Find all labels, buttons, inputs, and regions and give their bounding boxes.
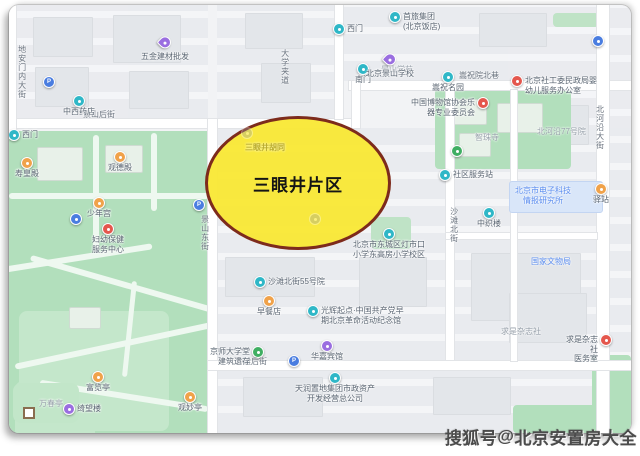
poi-dot-icon <box>447 76 450 79</box>
poi-label: 北京市东城区灯市口 小学东高房小学校区 <box>353 240 425 259</box>
parking-icon: P <box>47 79 51 85</box>
poi-dot-icon <box>597 40 600 43</box>
poi-label: 华嘉宾馆 <box>311 352 343 362</box>
poi-label: 中织楼 <box>477 219 501 229</box>
poi-marker-orange[interactable] <box>595 183 607 195</box>
parking-icon: P <box>197 202 201 208</box>
poi-marker-teal[interactable] <box>9 129 20 141</box>
poi-layer: 五金建材批发P中西药店西门寿皇殿观德殿少年宫妇幼保健 服务中心富览亭观妙亭绮望楼… <box>9 5 631 433</box>
pavilion-icon <box>23 407 35 419</box>
poi-label: 光辉起点·中国共产党早 期北京革命活动纪念馆 <box>321 306 404 325</box>
poi-dot-icon <box>444 174 447 177</box>
poi-dot-icon <box>119 156 122 159</box>
poi-dot-icon <box>605 339 608 342</box>
poi-dot-icon <box>13 134 16 137</box>
poi-label: 寿皇殿 <box>15 169 39 179</box>
poi-marker-teal[interactable] <box>254 276 266 288</box>
poi-marker-gray[interactable] <box>309 213 321 225</box>
poi-dot-icon <box>257 351 260 354</box>
watermark-platform: 搜狐号 <box>445 429 498 448</box>
poi-dot-icon <box>312 310 315 313</box>
poi-marker-teal[interactable] <box>389 11 401 23</box>
map-canvas[interactable]: 地安门内大街景山后街景山东街大学夹道嵩祝院北巷沙滩北街沙滩后街北河沿大街景山学苑… <box>9 5 631 433</box>
street-label: 北河沿大街 <box>595 105 605 150</box>
poi-dot-icon <box>334 377 337 380</box>
poi-dot-icon <box>268 300 271 303</box>
poi-dot-icon <box>362 68 365 71</box>
poi-marker-blue[interactable] <box>70 213 82 225</box>
highlight-ellipse: 三眼井片区 <box>205 116 391 250</box>
poi-marker-teal[interactable] <box>73 95 85 107</box>
poi-marker-orange[interactable] <box>92 371 104 383</box>
poi-dot-icon <box>98 202 101 205</box>
poi-dot-icon <box>338 28 341 31</box>
poi-marker-orange[interactable] <box>114 151 126 163</box>
poi-label: 妇幼保健 服务中心 <box>92 235 124 254</box>
area-label: 智珠寺 <box>475 133 499 143</box>
poi-marker-teal[interactable] <box>483 207 495 219</box>
poi-dot-icon <box>97 376 100 379</box>
poi-marker-orange[interactable] <box>184 391 196 403</box>
poi-marker-teal[interactable] <box>439 169 451 181</box>
poi-marker-blueP-parking[interactable]: P <box>43 76 55 88</box>
poi-dot-icon <box>68 408 71 411</box>
poi-label: 求是杂志社 医务室 <box>565 335 598 364</box>
street-label: 景山东街 <box>200 215 210 251</box>
poi-marker-gray[interactable] <box>241 127 253 139</box>
poi-label: 北京社工委民政局婴 幼儿服务办公室 <box>525 76 597 95</box>
poi-label: 绮望楼 <box>77 404 101 414</box>
poi-dot-icon <box>389 58 392 61</box>
poi-dot-icon <box>246 132 249 135</box>
page: { "highlight": { "label": "三眼井片区" }, "wa… <box>0 0 640 456</box>
poi-marker-purple[interactable] <box>63 403 75 415</box>
at-icon: @ <box>497 427 514 446</box>
poi-marker-orange[interactable] <box>263 295 275 307</box>
poi-label: 西门 <box>22 130 38 140</box>
parking-icon: P <box>292 358 296 364</box>
poi-label: 观德殿 <box>108 163 132 173</box>
poi-dot-icon <box>26 162 29 165</box>
poi-dot-icon <box>600 188 603 191</box>
poi-dot-icon <box>107 228 110 231</box>
poi-marker-red[interactable] <box>477 97 489 109</box>
poi-marker-green[interactable] <box>451 145 463 157</box>
poi-marker-orange[interactable] <box>21 157 33 169</box>
poi-label: 北京景山学校 <box>366 69 414 79</box>
poi-marker-teal[interactable] <box>333 23 345 35</box>
building-label: 北京市电子科技 情报研究所 <box>515 186 571 205</box>
poi-label: 富览亭 <box>86 383 110 393</box>
street-label: 地安门内大街 <box>17 45 27 99</box>
poi-label: 京师大学堂 建筑遗存 <box>210 347 250 366</box>
poi-dot-icon <box>259 281 262 284</box>
poi-label: 驿站 <box>593 195 609 205</box>
poi-dot-icon <box>394 16 397 19</box>
highlight-label: 三眼井片区 <box>253 171 343 196</box>
poi-marker-red[interactable] <box>102 223 114 235</box>
poi-label: 早餐店 <box>257 307 281 317</box>
poi-dot-icon <box>164 41 167 44</box>
poi-label: 少年宫 <box>87 209 111 219</box>
street-label: 大学夹道 <box>280 49 290 85</box>
poi-dot-icon <box>326 345 329 348</box>
poi-label: 首旅集团 (北京饭店) <box>403 12 440 31</box>
poi-marker-blueP-parking[interactable]: P <box>288 355 300 367</box>
poi-dot-icon <box>75 218 78 221</box>
poi-label: 中西药店 <box>63 107 95 117</box>
poi-dot-icon <box>388 233 391 236</box>
area-label: 北河沿77号院 <box>537 127 586 137</box>
poi-label: 观妙亭 <box>178 403 202 413</box>
poi-marker-green[interactable] <box>252 346 264 358</box>
poi-dot-icon <box>482 102 485 105</box>
watermark: 搜狐号@北京安置房大全 <box>445 424 637 449</box>
poi-label: 沙滩北街55号院 <box>268 277 325 287</box>
street-label: 国家文物局 <box>531 257 571 267</box>
poi-marker-blue[interactable] <box>592 35 604 47</box>
poi-marker-teal[interactable] <box>383 228 395 240</box>
poi-dot-icon <box>488 212 491 215</box>
poi-marker-blueP-parking[interactable]: P <box>193 199 205 211</box>
watermark-account: 北京安置房大全 <box>515 429 638 448</box>
street-label: 三眼井胡同 <box>245 143 285 153</box>
poi-label: 嵩祝名园 <box>432 83 464 93</box>
poi-marker-purple[interactable] <box>321 340 333 352</box>
poi-label: 西门 <box>347 24 363 34</box>
poi-marker-teal[interactable] <box>442 71 454 83</box>
poi-marker-orange[interactable] <box>93 197 105 209</box>
poi-marker-red[interactable] <box>511 75 523 87</box>
street-label: 嵩祝院北巷 <box>459 71 499 81</box>
poi-label: 社区服务站 <box>453 170 493 180</box>
street-label: 沙滩北街 <box>449 207 459 243</box>
poi-marker-teal[interactable] <box>329 372 341 384</box>
poi-label: 中国博物馆协会乐 器专业委员会 <box>411 98 475 117</box>
poi-label: 天润置地集团市政资产 开发经营总公司 <box>295 384 375 403</box>
area-label: 求是杂志社 <box>501 327 541 337</box>
area-label: 万春亭 <box>39 399 63 409</box>
poi-dot-icon <box>314 218 317 221</box>
poi-marker-teal[interactable] <box>307 305 319 317</box>
poi-dot-icon <box>189 396 192 399</box>
poi-marker-red[interactable] <box>600 334 612 346</box>
poi-dot-icon <box>78 100 81 103</box>
poi-label: 五金建材批发 <box>141 52 189 62</box>
poi-dot-icon <box>516 80 519 83</box>
poi-dot-icon <box>456 150 459 153</box>
poi-marker-purple[interactable] <box>157 34 174 51</box>
